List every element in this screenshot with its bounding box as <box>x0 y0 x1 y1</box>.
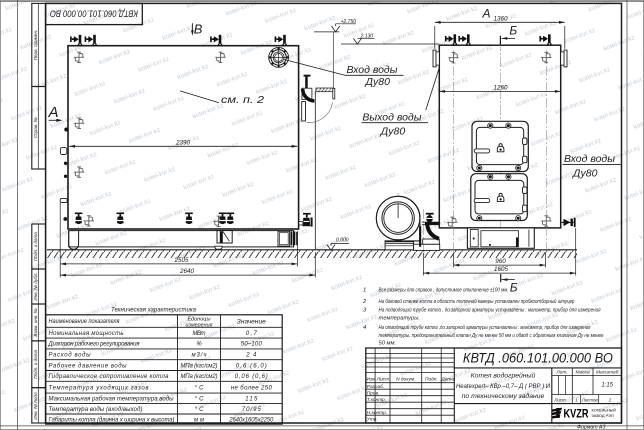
svg-text:Лит.: Лит. <box>555 370 567 376</box>
svg-text:МПа (кгс/см2): МПа (кгс/см2) <box>181 374 218 380</box>
svg-text:Б: Б <box>509 24 517 38</box>
svg-text:2505: 2505 <box>173 257 189 264</box>
svg-text:КВТД .060.101.00.000 ВО: КВТД .060.101.00.000 ВО <box>463 350 613 365</box>
svg-text:Выход воды: Выход воды <box>362 111 421 123</box>
svg-text:А: А <box>48 104 59 121</box>
svg-text:960: 960 <box>495 258 506 265</box>
svg-text:ЗАВОД РЭП: ЗАВОД РЭП <box>592 413 614 418</box>
svg-text:Листов: Листов <box>581 397 599 402</box>
svg-text:А: А <box>482 7 491 21</box>
svg-text:м3/ч: м3/ч <box>192 353 207 359</box>
svg-text:Heatexpert– КВр –0,7– Д ( РВР: Heatexpert– КВр –0,7– Д ( РВР ) И <box>456 383 550 390</box>
svg-text:температуры.: температуры. <box>379 315 421 321</box>
svg-text:Максимальная рабочая температу: Максимальная рабочая температура воды <box>49 397 175 403</box>
svg-text:Техническая характеристика: Техническая характеристика <box>111 308 197 314</box>
svg-text:Вход воды: Вход воды <box>347 64 398 76</box>
svg-text:Т.контр.: Т.контр. <box>367 397 386 403</box>
svg-text:Масса: Масса <box>576 370 591 376</box>
svg-text:Формат А3: Формат А3 <box>577 425 605 430</box>
svg-text:0,6 (6,0): 0,6 (6,0) <box>236 363 267 369</box>
svg-text:2390: 2390 <box>175 139 191 146</box>
svg-text:Ду80: Ду80 <box>380 126 406 138</box>
svg-text:Габариты котла (длинна х ширин: Габариты котла (длинна х ширина х высота… <box>49 417 175 423</box>
svg-text:Наименование показателя: Наименование показателя <box>49 319 121 325</box>
svg-text:2: 2 <box>608 397 612 402</box>
svg-text:Изм Лист: Изм Лист <box>367 376 390 382</box>
svg-text:115: 115 <box>245 397 258 403</box>
svg-text:°С: °С <box>195 385 205 391</box>
svg-text:Дата: Дата <box>440 376 454 382</box>
svg-text:50–100: 50–100 <box>241 342 263 348</box>
svg-text:мм: мм <box>194 417 204 423</box>
svg-text:Б: Б <box>510 281 518 295</box>
svg-text:KVZR: KVZR <box>564 409 590 421</box>
svg-text:Ду80: Ду80 <box>572 168 598 180</box>
svg-text:На боковой стенке котла в обла: На боковой стенке котла в области топочн… <box>379 298 576 305</box>
svg-text:Разраб.: Разраб. <box>367 384 384 390</box>
svg-text:На отводящий трубе котла ,до з: На отводящий трубе котла ,до запорной ар… <box>379 324 591 331</box>
svg-text:0,06 (0,6): 0,06 (0,6) <box>235 374 268 380</box>
svg-text:4: 4 <box>363 325 366 331</box>
svg-text:Подп. и дата: Подп. и дата <box>33 349 38 378</box>
svg-text:МВт: МВт <box>193 331 206 337</box>
svg-text:1360: 1360 <box>493 15 508 22</box>
svg-text:Н.контр.: Н.контр. <box>367 410 387 416</box>
svg-text:температуры, предохранительный: температуры, предохранительный клапан Ду… <box>379 332 605 339</box>
svg-text:Утв.: Утв. <box>367 417 378 423</box>
svg-text:Инв. № подл.: Инв. № подл. <box>33 391 38 420</box>
svg-text:+2.750: +2.750 <box>341 19 357 25</box>
svg-text:Ду80: Ду80 <box>365 76 391 88</box>
svg-text:2.130: 2.130 <box>360 33 374 39</box>
svg-text:1: 1 <box>363 288 366 294</box>
svg-text:70/95: 70/95 <box>242 407 262 413</box>
svg-text:1:15: 1:15 <box>601 383 613 389</box>
svg-text:Перв. примен.: Перв. примен. <box>33 30 38 61</box>
svg-text:В: В <box>194 22 203 37</box>
svg-text:Температура воды (вход/выход): Температура воды (вход/выход) <box>49 407 143 413</box>
svg-text:°С: °С <box>195 397 205 403</box>
svg-text:0.000: 0.000 <box>336 237 349 243</box>
svg-text:Расход воды: Расход воды <box>49 353 92 359</box>
svg-text:Подп. и дата: Подп. и дата <box>33 232 38 261</box>
svg-text:Значение: Значение <box>237 319 267 325</box>
svg-text:2640: 2640 <box>179 268 195 275</box>
svg-text:не более 250: не более 250 <box>231 385 273 391</box>
svg-text:0,7: 0,7 <box>246 331 258 337</box>
svg-text:Инв. № дубл.: Инв. № дубл. <box>33 272 38 300</box>
svg-text:50 мм.: 50 мм. <box>379 340 397 346</box>
svg-text:1605: 1605 <box>494 266 509 273</box>
svg-text:по техническому задание: по техническому задание <box>462 392 545 400</box>
svg-text:измерения: измерения <box>186 322 213 328</box>
svg-text:N докум.: N докум. <box>396 376 415 382</box>
svg-text:Подп.: Подп. <box>425 376 438 382</box>
svg-text:Гидравлическое сопротивление к: Гидравлическое сопротивление котла <box>49 374 170 380</box>
svg-text:Температура уходящих газов: Температура уходящих газов <box>49 385 149 391</box>
svg-text:см. п. 2: см. п. 2 <box>221 95 265 106</box>
svg-text:2640х1605х2250: 2640х1605х2250 <box>228 417 274 423</box>
svg-text:Справ. №: Справ. № <box>33 117 38 138</box>
svg-text:Вход воды: Вход воды <box>564 153 615 165</box>
svg-text:КВТД.060.101.00.000 ВО: КВТД.060.101.00.000 ВО <box>50 8 138 18</box>
svg-text:°С: °С <box>195 407 205 413</box>
svg-text:Масштаб: Масштаб <box>596 370 619 376</box>
svg-text:1260: 1260 <box>493 84 508 91</box>
svg-text:МПа (кгс/см2): МПа (кгс/см2) <box>181 363 218 369</box>
svg-text:Рабочее давление воды: Рабочее давление воды <box>49 363 128 369</box>
svg-text:%: % <box>196 342 202 348</box>
svg-text:На подводящий трубе котла ,: На подводящий трубе котла , до запорной … <box>379 306 601 313</box>
svg-text:Пров.: Пров. <box>367 390 380 396</box>
svg-text:Диапазон рабочего регулировани: Диапазон рабочего регулирования <box>48 342 141 348</box>
svg-text:Все размеры для справок , допу: Все размеры для справок , допустимое отк… <box>379 288 509 294</box>
svg-text:Номинальная мощность: Номинальная мощность <box>49 331 124 337</box>
svg-text:Взам. инв. №: Взам. инв. № <box>33 308 38 336</box>
svg-text:Лист: Лист <box>553 397 566 402</box>
svg-text:Котел водогрейный: Котел водогрейный <box>471 371 536 379</box>
